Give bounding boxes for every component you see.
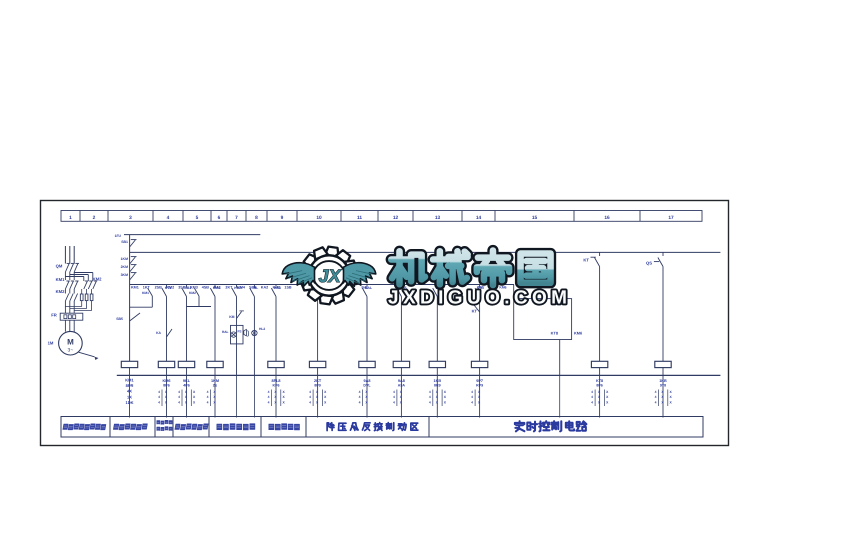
- svg-text:13: 13: [435, 215, 441, 221]
- svg-text:9A8: 9A8: [364, 379, 371, 383]
- svg-text:2KT: 2KT: [225, 286, 233, 290]
- svg-text:4: 4: [393, 395, 395, 399]
- svg-text:4: 4: [207, 390, 209, 394]
- svg-text:KM2: KM2: [166, 286, 174, 290]
- svg-text:1KM: 1KM: [121, 257, 128, 261]
- svg-text:10: 10: [316, 215, 322, 221]
- svg-text:15: 15: [532, 215, 538, 221]
- svg-text:4: 4: [178, 390, 180, 394]
- svg-text:1KB: 1KB: [433, 379, 441, 383]
- svg-text:SB6: SB6: [249, 286, 256, 290]
- svg-text:KT: KT: [472, 309, 478, 314]
- svg-text:JXDIGUO.COM: JXDIGUO.COM: [388, 288, 567, 309]
- svg-text:KT8: KT8: [551, 331, 559, 336]
- svg-text:4: 4: [167, 215, 170, 221]
- svg-text:1M: 1M: [48, 341, 54, 346]
- svg-text:4: 4: [309, 390, 311, 394]
- svg-text:1X: 1X: [127, 394, 132, 399]
- svg-text:KM1: KM1: [131, 286, 139, 290]
- svg-text:2SB: 2SB: [155, 286, 163, 290]
- svg-text:2KM: 2KM: [121, 265, 128, 269]
- svg-text:1KT: 1KT: [143, 286, 151, 290]
- svg-text:KM6: KM6: [574, 331, 583, 336]
- svg-text:3SB: 3SB: [178, 286, 186, 290]
- svg-text:KT: KT: [583, 258, 589, 263]
- svg-text:11: 11: [357, 215, 362, 221]
- svg-text:QS: QS: [646, 261, 652, 266]
- svg-text:KM4: KM4: [237, 286, 246, 290]
- svg-text:4: 4: [471, 395, 473, 399]
- svg-text:4: 4: [158, 400, 160, 404]
- svg-text:8P6: 8P6: [596, 384, 602, 388]
- svg-text:4: 4: [309, 400, 311, 404]
- svg-text:4: 4: [393, 390, 395, 394]
- svg-text:RP9: RP9: [476, 384, 483, 388]
- svg-text:16: 16: [604, 215, 610, 221]
- svg-text:4: 4: [591, 390, 593, 394]
- svg-text:4: 4: [393, 400, 395, 404]
- svg-text:8PR: 8PR: [126, 383, 134, 388]
- svg-text:3: 3: [129, 215, 132, 221]
- svg-text:17: 17: [668, 215, 674, 221]
- svg-text:3~: 3~: [68, 348, 74, 354]
- svg-text:4: 4: [207, 395, 209, 399]
- svg-text:KM1: KM1: [125, 378, 134, 383]
- svg-text:KM5: KM5: [273, 286, 281, 290]
- svg-text:1: 1: [69, 215, 72, 221]
- svg-text:5: 5: [196, 215, 199, 221]
- svg-text:KM2: KM2: [56, 289, 66, 294]
- svg-text:9KL: 9KL: [183, 379, 191, 383]
- svg-text:4: 4: [429, 400, 431, 404]
- svg-text:2E: 2E: [213, 384, 218, 388]
- svg-text:4: 4: [471, 390, 473, 394]
- svg-text:3KM: 3KM: [121, 273, 128, 277]
- svg-text:QM: QM: [56, 264, 63, 269]
- svg-text:4: 4: [655, 390, 657, 394]
- svg-text:JX: JX: [318, 266, 341, 286]
- svg-text:4X: 4X: [127, 389, 132, 394]
- svg-text:2: 2: [93, 215, 96, 221]
- svg-text:4: 4: [655, 400, 657, 404]
- svg-text:4: 4: [655, 395, 657, 399]
- svg-text:DVL: DVL: [363, 384, 371, 388]
- svg-text:1SB: 1SB: [284, 286, 292, 290]
- svg-text:4: 4: [471, 400, 473, 404]
- svg-text:8: 8: [255, 215, 258, 221]
- svg-text:KM3: KM3: [190, 286, 198, 290]
- svg-text:1KB: 1KB: [659, 379, 667, 383]
- svg-text:1KM: 1KM: [211, 379, 219, 383]
- svg-text:8R9: 8R9: [434, 384, 441, 388]
- svg-text:4: 4: [207, 400, 209, 404]
- svg-text:4: 4: [158, 395, 160, 399]
- svg-text:2KT: 2KT: [314, 379, 322, 383]
- svg-text:9A8: 9A8: [398, 379, 405, 383]
- svg-text:4: 4: [359, 395, 361, 399]
- svg-text:4: 4: [359, 400, 361, 404]
- svg-text:FR: FR: [51, 313, 57, 318]
- svg-text:KA1: KA1: [214, 286, 221, 290]
- svg-text:KP6: KP6: [273, 384, 280, 388]
- svg-text:KM1: KM1: [142, 291, 149, 295]
- svg-text:HL2: HL2: [259, 327, 265, 331]
- svg-text:KM2: KM2: [189, 291, 196, 295]
- svg-text:4: 4: [429, 390, 431, 394]
- svg-text:4: 4: [591, 400, 593, 404]
- svg-text:9: 9: [281, 215, 284, 221]
- svg-text:1DK: 1DK: [125, 400, 133, 405]
- svg-text:6: 6: [218, 215, 221, 221]
- svg-text:8P9: 8P9: [314, 384, 320, 388]
- svg-text:KA2: KA2: [261, 286, 268, 290]
- svg-text:9P7: 9P7: [476, 379, 483, 383]
- svg-text:8PL8: 8PL8: [271, 379, 280, 383]
- svg-text:4: 4: [268, 395, 270, 399]
- svg-text:4SB: 4SB: [202, 286, 210, 290]
- svg-text:4: 4: [429, 395, 431, 399]
- svg-text:KT8: KT8: [596, 379, 603, 383]
- svg-text:4: 4: [268, 390, 270, 394]
- svg-text:4: 4: [268, 400, 270, 404]
- svg-text:4: 4: [309, 395, 311, 399]
- svg-text:9T8: 9T8: [660, 384, 666, 388]
- svg-text:A9A: A9A: [398, 384, 406, 388]
- svg-text:SB5: SB5: [116, 317, 123, 321]
- svg-text:BAL: BAL: [362, 286, 369, 290]
- svg-text:M: M: [67, 338, 74, 347]
- svg-text:7: 7: [235, 215, 238, 221]
- svg-text:4: 4: [359, 390, 361, 394]
- svg-text:SB1: SB1: [121, 240, 128, 244]
- svg-text:4: 4: [178, 395, 180, 399]
- svg-text:KM: KM: [229, 315, 234, 319]
- svg-text:KM1: KM1: [56, 277, 66, 282]
- svg-text:RAL: RAL: [222, 330, 229, 334]
- svg-text:1FU: 1FU: [115, 234, 122, 238]
- svg-text:4: 4: [158, 390, 160, 394]
- svg-text:4: 4: [178, 400, 180, 404]
- svg-text:KM6: KM6: [162, 379, 170, 383]
- svg-text:4P6: 4P6: [183, 384, 189, 388]
- svg-text:14: 14: [476, 215, 482, 221]
- svg-text:12: 12: [393, 215, 399, 221]
- svg-text:KA: KA: [156, 331, 161, 335]
- svg-text:4: 4: [591, 395, 593, 399]
- svg-text:8P6: 8P6: [163, 384, 169, 388]
- svg-text:FS: FS: [237, 330, 241, 334]
